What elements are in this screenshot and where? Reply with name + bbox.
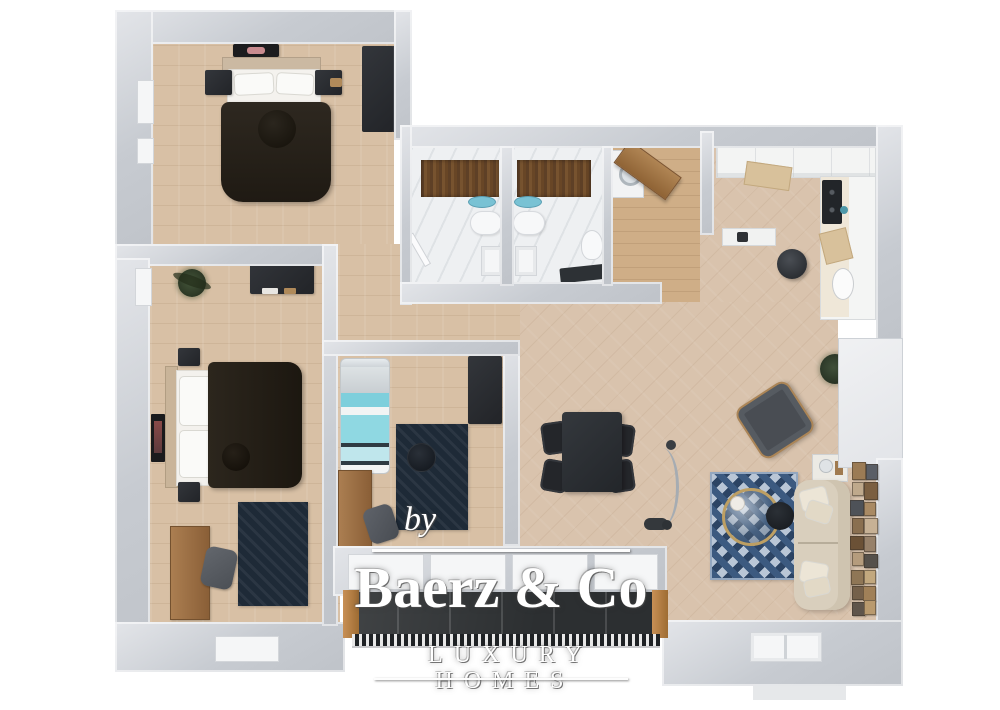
sofa-pillow-2	[804, 498, 835, 525]
wall-bath-bottom	[400, 282, 662, 304]
balcony-wood-post-right	[652, 590, 668, 638]
bedroom2-nightstand-bottom	[178, 482, 200, 502]
bedroom2-duvet	[208, 362, 302, 488]
bedroom1-round-cushion	[258, 110, 296, 148]
gallery-frame	[864, 570, 876, 584]
gallery-frame	[850, 536, 864, 550]
gallery-frame	[852, 462, 866, 480]
bathL-vanity	[470, 211, 502, 235]
dresser-decor-wood	[284, 288, 296, 294]
wall-right-lower	[876, 458, 903, 630]
console-decor	[737, 232, 748, 242]
bedroom1-pillow-right	[275, 72, 314, 96]
gallery-frame	[864, 518, 878, 534]
wall-entry-kitchen	[700, 131, 714, 235]
kitchen-cooktop	[822, 180, 842, 224]
floor-plan-render: by Baerz & Co LUXURY HOMES	[0, 0, 1000, 710]
wall-kids-right	[503, 340, 520, 546]
cream-sofa	[794, 480, 850, 610]
kids-wardrobe	[468, 356, 502, 424]
wall-right-upper	[876, 125, 903, 347]
window-bedroom2-bottom	[215, 636, 279, 662]
wall-mid-top	[400, 125, 903, 148]
bedroom2-nightstand-top	[178, 348, 200, 366]
kitchen-sink	[832, 268, 854, 300]
wall-bath-divider	[500, 146, 514, 286]
gallery-frame	[864, 536, 876, 552]
gallery-frame	[864, 502, 876, 516]
gallery-frame	[852, 482, 864, 496]
bathL-wood-shower-wall	[421, 160, 499, 197]
art-detail	[247, 47, 265, 54]
bathR-shower-tray	[515, 246, 537, 276]
balcony-railing	[352, 634, 660, 646]
watermark-line-bottom	[374, 678, 628, 680]
wall-bath-left	[400, 125, 412, 305]
wall-left-upper	[115, 10, 153, 258]
gallery-frame	[864, 482, 878, 500]
wall-right-recess	[838, 338, 903, 468]
balcony-wood-post-left	[343, 590, 359, 638]
bathL-teal-basin	[468, 196, 496, 208]
gallery-wall	[848, 460, 880, 618]
kids-rug	[396, 424, 468, 530]
wall-bedroom1-right	[394, 10, 412, 140]
wall-kids-top	[322, 340, 520, 356]
bathR-teal-basin	[514, 196, 542, 208]
window-kids-band-4	[594, 554, 658, 590]
gallery-frame	[866, 464, 878, 480]
gallery-frame	[864, 600, 876, 615]
kids-round-pouf	[407, 443, 436, 472]
wall-left-lower	[115, 258, 150, 672]
bathR-toilet	[581, 230, 603, 260]
arc-lamp-shade	[666, 440, 676, 450]
bedroom1-wall-art	[233, 44, 279, 57]
dresser-decor-white	[262, 288, 278, 294]
bedroom1-pillow-left	[233, 72, 274, 96]
window-bedroom1-left-1	[137, 80, 154, 124]
window-kids-band-1	[348, 554, 424, 590]
art-detail	[154, 421, 162, 453]
window-living-bottom	[750, 632, 822, 662]
bathR-wood-shower-wall	[517, 160, 591, 197]
window-bedroom2-left	[135, 268, 152, 306]
gallery-frame	[852, 518, 864, 534]
watermark-tagline: LUXURY HOMES	[360, 642, 650, 695]
bathR-vanity	[513, 211, 545, 235]
kitchen-round-stool	[777, 249, 807, 279]
decor-sphere	[730, 496, 745, 511]
kitchen-upper-cabinets	[716, 144, 876, 178]
gallery-frame	[864, 554, 878, 568]
dining-table	[562, 412, 622, 492]
bedroom1-wardrobe	[362, 46, 396, 132]
window-kids-band-2	[430, 554, 506, 590]
bedroom2-rug	[238, 502, 308, 606]
kids-single-bed	[340, 358, 390, 474]
arc-lamp-knob	[662, 520, 672, 530]
wall-bathR-right	[602, 146, 613, 286]
bedroom1-nightstand-left	[205, 70, 232, 95]
sofa-seat-line	[798, 542, 838, 544]
gallery-frame	[851, 570, 864, 585]
window-mullion	[784, 635, 787, 659]
gallery-frame	[863, 586, 876, 601]
wall-top-left-block	[115, 10, 412, 44]
kitchen-kettle	[840, 206, 848, 214]
bedroom2-round-cushion	[222, 443, 250, 471]
gallery-frame	[850, 500, 864, 516]
sofa-pillow-4	[802, 575, 831, 598]
gallery-frame	[852, 552, 864, 566]
balcony-glass-doors	[345, 592, 667, 634]
bedroom1-nightstand-tray	[330, 78, 342, 87]
dark-side-table	[766, 502, 794, 530]
bedroom2-wall-art	[151, 414, 165, 462]
entry-console-shelf	[722, 228, 776, 246]
vase	[819, 459, 833, 473]
arc-floor-lamp-arc	[646, 448, 679, 526]
window-bedroom1-left-2	[137, 138, 154, 164]
window-kids-band-3	[512, 554, 588, 590]
